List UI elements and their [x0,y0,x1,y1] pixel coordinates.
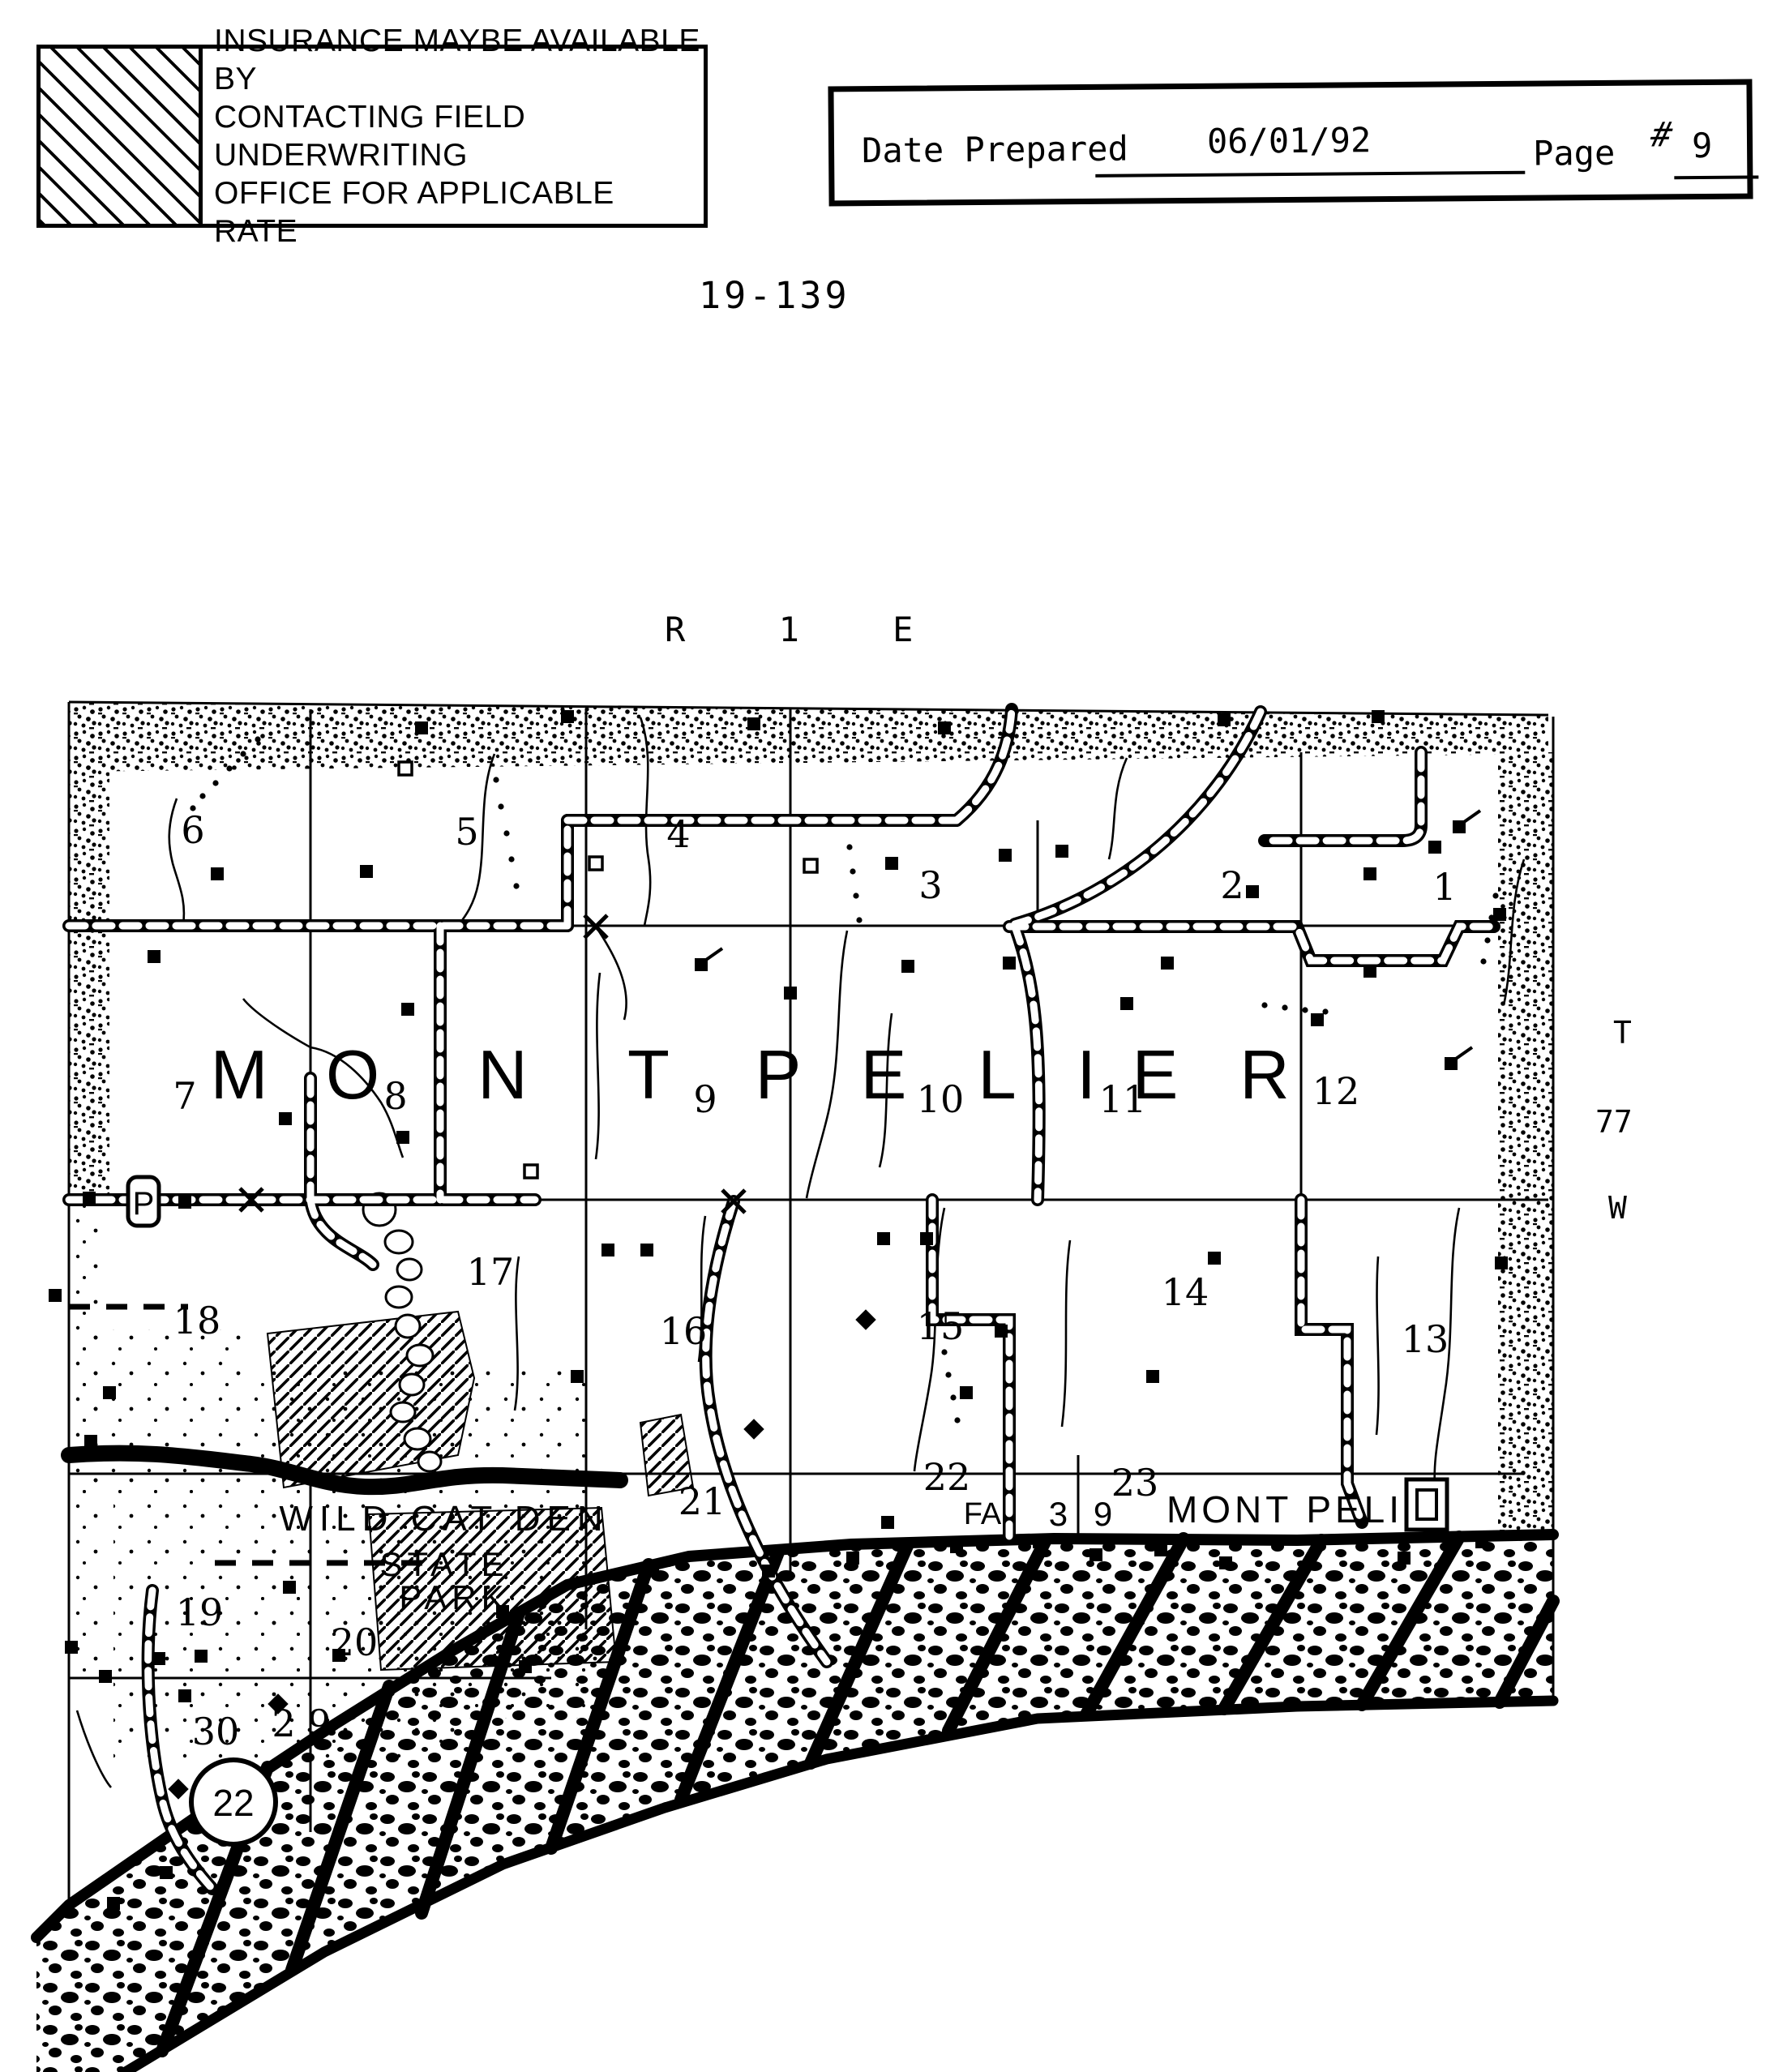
building-marker [1218,713,1231,726]
building-marker [881,1516,894,1529]
trail-dot [850,868,855,874]
section-number-13: 13 [1402,1317,1449,1361]
town-letter-9: R [1239,1037,1289,1114]
road-fa-label: FA [964,1497,1002,1531]
building-marker [360,865,373,878]
section-number-11: 11 [1099,1077,1147,1121]
open-square-marker [804,859,817,872]
diamond-marker [855,1309,875,1329]
building-marker [99,1670,112,1683]
section-number-15: 15 [917,1304,965,1348]
flag-pole [706,948,722,960]
building-marker [1161,957,1174,970]
building-marker [178,1689,191,1702]
section-number-4: 4 [666,812,690,856]
section-number-12: 12 [1312,1069,1360,1113]
building-marker [195,1650,208,1663]
building-marker [83,1192,96,1205]
section-number-23: 23 [1111,1461,1159,1505]
road-39-label: 3 9 [1049,1495,1120,1533]
trail-dot [1484,937,1490,943]
building-marker [1363,867,1376,880]
building-marker [950,1540,963,1553]
building-marker [178,1196,191,1209]
section-number-10: 10 [917,1077,965,1121]
highway-22-number: 22 [212,1782,254,1824]
building-marker [877,1232,890,1245]
highway-22-shield: 22 [191,1760,276,1844]
section-number-7: 7 [173,1074,196,1118]
trail-dot [190,805,195,811]
building-marker [279,1112,292,1125]
building-marker [519,1660,532,1673]
section-number-8: 8 [383,1074,407,1118]
trail-dot [945,1372,951,1377]
building-marker [152,1652,165,1665]
section-number-21: 21 [679,1479,726,1523]
building-marker [1033,1535,1046,1548]
building-marker [1208,1252,1221,1265]
section-number-9: 9 [693,1077,717,1121]
trail-dot [853,893,858,898]
town-letter-3: T [627,1037,670,1114]
building-marker [1120,997,1133,1010]
diamond-marker [743,1419,764,1439]
trail-dot [1302,1007,1308,1012]
building-marker [1246,885,1259,898]
trail-dot [226,765,232,771]
building-marker [84,1435,97,1448]
building-marker [396,1131,409,1144]
building-marker [283,1581,296,1594]
section-number-2: 2 [1220,863,1244,907]
building-marker [747,717,760,730]
building-marker [1003,957,1016,970]
building-marker [1398,1552,1411,1565]
building-marker [846,1552,859,1565]
trail-dot [950,1394,956,1400]
building-marker [960,1386,973,1399]
building-marker [561,710,574,723]
trail-dot [508,856,514,862]
building-marker [999,849,1012,862]
town-name-partial: MONT PELI [1167,1488,1403,1530]
building-marker [65,1641,78,1654]
building-marker [1154,1543,1167,1556]
section-number-18: 18 [173,1299,221,1342]
open-square-marker [399,762,412,775]
trail-dot [498,803,503,809]
trail-dot [941,1349,947,1355]
town-letter-1: O [326,1037,379,1114]
town-letter-0: M [211,1037,268,1114]
building-marker [646,1560,659,1573]
building-marker [1219,1556,1232,1569]
section-number-6: 6 [181,808,204,852]
building-marker [401,1003,414,1016]
building-marker [901,960,914,973]
building-marker [1089,1548,1102,1561]
building-marker [160,1866,173,1879]
building-marker [601,1244,614,1256]
trail-dot [199,793,205,798]
building-marker [571,1370,584,1383]
building-marker [148,950,161,963]
trail-dot [954,1417,960,1423]
trail-dot [240,751,246,756]
building-marker [415,721,428,734]
building-marker [1146,1370,1159,1383]
building-marker [920,1232,933,1245]
park-name-line2: STATE [379,1545,508,1583]
building-marker [1372,710,1385,723]
building-marker [938,721,951,734]
p-route-shield: P [128,1177,159,1226]
town-letter-7: I [1077,1037,1096,1114]
trail-dot [1282,1004,1287,1010]
trail-dot [856,917,862,923]
section-number-17: 17 [467,1250,515,1294]
building-marker [1428,841,1441,854]
town-letter-4: P [756,1037,802,1114]
building-marker [1495,1256,1508,1269]
open-square-marker [589,857,602,870]
section-number-14: 14 [1162,1270,1209,1314]
park-name-line1: WILD CAT DEN [279,1499,609,1539]
trail-dot [513,883,519,888]
building-marker [1055,845,1068,858]
building-marker [885,857,898,870]
park-name-line3: PARK [399,1578,508,1616]
building-marker [762,1565,775,1578]
building-marker [211,867,224,880]
building-marker [1363,965,1376,978]
section-number-1: 1 [1432,865,1456,909]
flag-building-marker [1453,820,1466,833]
section-number-30: 30 [192,1710,240,1753]
town-letter-6: L [978,1037,1016,1114]
building-marker [332,1649,345,1662]
trail-dot [503,830,509,836]
building-marker [1311,1013,1324,1026]
flag-pole [1464,811,1480,822]
section-number-5: 5 [455,810,478,854]
trail-dot [1488,914,1494,920]
building-marker [784,987,797,1000]
trail-dot [846,844,852,850]
section-number-16: 16 [660,1309,708,1353]
building-marker [995,1325,1008,1338]
section-number-19: 19 [176,1590,224,1634]
building-marker [1475,1535,1488,1548]
building-marker [640,1244,653,1256]
building-marker [103,1386,116,1399]
trail-dot [1480,958,1486,964]
town-symbol [1406,1479,1447,1530]
building-marker [49,1289,62,1302]
diamond-marker [168,1779,188,1799]
trail-dot [212,780,218,786]
town-letter-2: N [477,1037,527,1114]
flag-pole [1456,1047,1472,1059]
scanned-map-page: { "header": { "legend": { "lines": ["INS… [0,0,1768,2072]
trail-dot [1322,1008,1328,1014]
town-letter-5: E [861,1037,907,1114]
building-marker [1493,908,1506,921]
trail-dot [1261,1002,1267,1008]
township-map: P 22 WILD CAT DEN STATE PARK MONT PELI F… [0,0,1768,2072]
p-route-letter: P [133,1186,155,1222]
flag-building-marker [695,958,708,971]
open-square-marker [524,1165,537,1178]
trail-dot [1492,893,1498,898]
building-marker [107,1897,120,1910]
section-number-22: 22 [923,1455,971,1499]
building-marker [496,1605,509,1618]
trail-dot [255,736,260,742]
flag-building-marker [1445,1057,1458,1070]
section-number-3: 3 [918,863,942,907]
trail-dot [493,777,499,782]
